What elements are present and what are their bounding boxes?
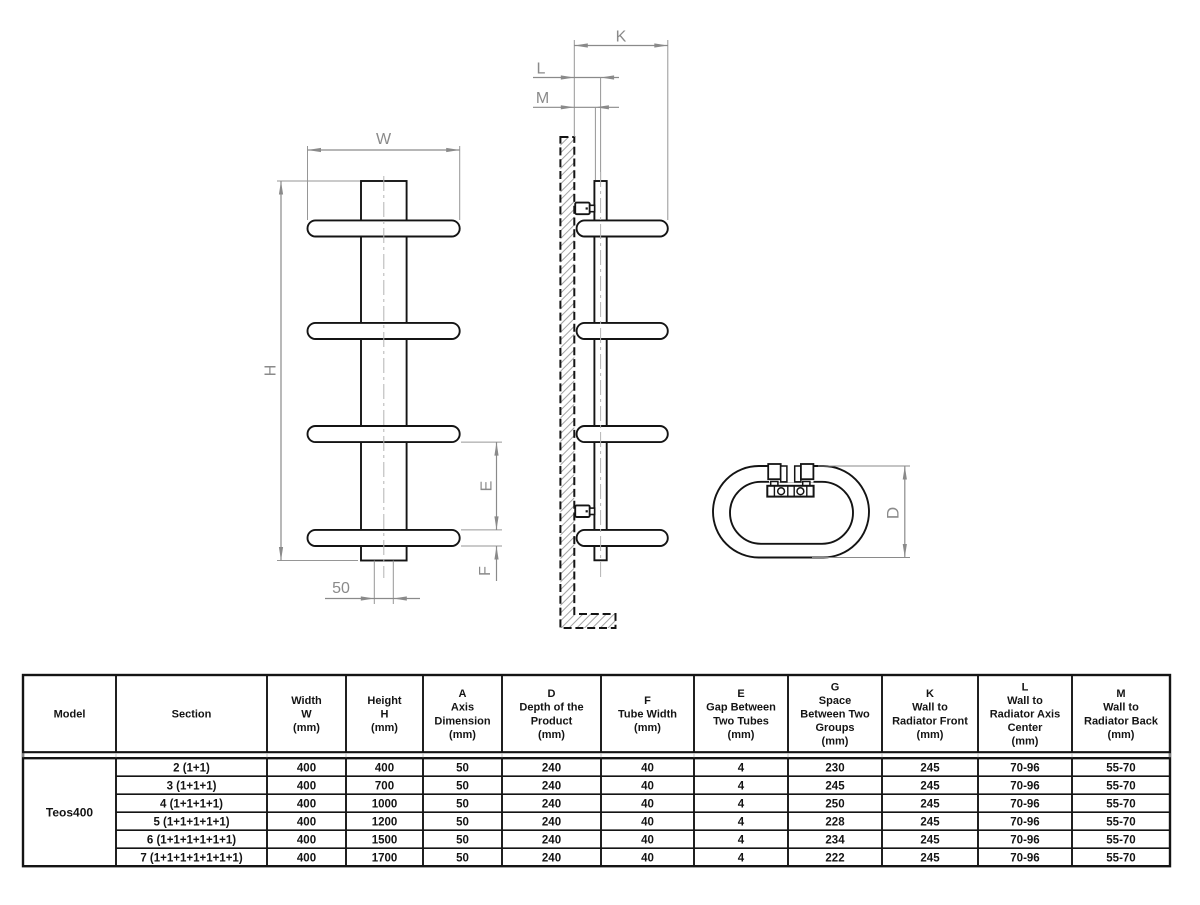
svg-text:(mm): (mm) — [822, 736, 849, 748]
svg-text:245: 245 — [920, 834, 940, 846]
svg-text:40: 40 — [641, 816, 654, 828]
svg-text:400: 400 — [297, 834, 316, 846]
svg-text:(mm): (mm) — [449, 729, 476, 741]
svg-text:Depth of the: Depth of the — [519, 702, 583, 714]
svg-text:1200: 1200 — [372, 816, 398, 828]
svg-text:(mm): (mm) — [371, 722, 398, 734]
svg-text:L: L — [537, 61, 546, 78]
svg-text:40: 40 — [641, 798, 654, 810]
svg-text:F: F — [644, 695, 651, 707]
svg-text:1500: 1500 — [372, 834, 398, 846]
svg-text:F: F — [477, 566, 494, 576]
svg-text:50: 50 — [332, 580, 350, 597]
svg-text:400: 400 — [297, 780, 316, 792]
svg-text:55-70: 55-70 — [1106, 780, 1135, 792]
svg-text:50: 50 — [456, 852, 469, 864]
svg-text:245: 245 — [920, 852, 940, 864]
svg-text:245: 245 — [920, 762, 940, 774]
svg-text:Radiator Front: Radiator Front — [892, 715, 968, 727]
svg-text:240: 240 — [542, 780, 561, 792]
svg-text:M: M — [1116, 688, 1125, 700]
svg-text:240: 240 — [542, 816, 561, 828]
svg-text:Axis: Axis — [451, 702, 474, 714]
svg-text:5 (1+1+1+1+1): 5 (1+1+1+1+1) — [153, 816, 229, 828]
svg-text:55-70: 55-70 — [1106, 816, 1135, 828]
svg-text:40: 40 — [641, 762, 654, 774]
svg-text:245: 245 — [920, 780, 940, 792]
svg-text:(mm): (mm) — [917, 729, 944, 741]
svg-text:Space: Space — [819, 695, 851, 707]
svg-text:H: H — [263, 365, 280, 377]
svg-text:70-96: 70-96 — [1010, 762, 1039, 774]
svg-text:D: D — [884, 507, 903, 519]
svg-text:245: 245 — [920, 816, 940, 828]
svg-text:M: M — [536, 90, 549, 107]
svg-text:250: 250 — [825, 798, 844, 810]
svg-text:55-70: 55-70 — [1106, 852, 1135, 864]
svg-text:400: 400 — [375, 762, 394, 774]
svg-text:40: 40 — [641, 780, 654, 792]
svg-text:4: 4 — [738, 834, 745, 846]
svg-text:234: 234 — [825, 834, 845, 846]
svg-text:4: 4 — [738, 816, 745, 828]
svg-text:50: 50 — [456, 816, 469, 828]
svg-text:400: 400 — [297, 852, 316, 864]
svg-text:245: 245 — [920, 798, 940, 810]
svg-text:(mm): (mm) — [1012, 736, 1039, 748]
svg-text:4: 4 — [738, 780, 745, 792]
svg-text:G: G — [831, 681, 840, 693]
svg-text:240: 240 — [542, 852, 561, 864]
svg-text:W: W — [376, 131, 392, 148]
svg-text:Product: Product — [531, 715, 573, 727]
svg-text:(mm): (mm) — [728, 729, 755, 741]
svg-text:D: D — [548, 688, 556, 700]
svg-text:240: 240 — [542, 798, 561, 810]
svg-text:6 (1+1+1+1+1+1): 6 (1+1+1+1+1+1) — [147, 834, 236, 846]
svg-text:E: E — [479, 481, 496, 492]
svg-text:A: A — [459, 688, 467, 700]
svg-text:1700: 1700 — [372, 852, 398, 864]
svg-text:400: 400 — [297, 762, 316, 774]
svg-text:70-96: 70-96 — [1010, 834, 1039, 846]
svg-text:400: 400 — [297, 816, 316, 828]
svg-text:222: 222 — [825, 852, 844, 864]
svg-text:Dimension: Dimension — [434, 715, 491, 727]
svg-text:240: 240 — [542, 762, 561, 774]
svg-text:Between Two: Between Two — [800, 709, 870, 721]
svg-text:70-96: 70-96 — [1010, 852, 1039, 864]
svg-text:Center: Center — [1008, 722, 1044, 734]
svg-text:70-96: 70-96 — [1010, 816, 1039, 828]
svg-text:(mm): (mm) — [538, 729, 565, 741]
svg-text:70-96: 70-96 — [1010, 780, 1039, 792]
svg-text:4: 4 — [738, 798, 745, 810]
svg-text:Wall to: Wall to — [1007, 695, 1043, 707]
svg-text:70-96: 70-96 — [1010, 798, 1039, 810]
svg-text:4: 4 — [738, 852, 745, 864]
svg-text:55-70: 55-70 — [1106, 798, 1135, 810]
svg-text:(mm): (mm) — [1108, 729, 1135, 741]
svg-text:Radiator Back: Radiator Back — [1084, 715, 1159, 727]
svg-text:Two Tubes: Two Tubes — [713, 715, 769, 727]
svg-text:50: 50 — [456, 762, 469, 774]
svg-text:3 (1+1+1): 3 (1+1+1) — [167, 780, 217, 792]
svg-text:Radiator Axis: Radiator Axis — [990, 709, 1061, 721]
svg-text:230: 230 — [825, 762, 844, 774]
svg-text:2 (1+1): 2 (1+1) — [173, 762, 210, 774]
svg-text:Section: Section — [172, 709, 212, 721]
svg-text:Teos400: Teos400 — [46, 805, 93, 819]
svg-text:40: 40 — [641, 852, 654, 864]
svg-text:H: H — [381, 709, 389, 721]
svg-text:K: K — [616, 29, 627, 46]
svg-text:700: 700 — [375, 780, 394, 792]
svg-text:4: 4 — [738, 762, 745, 774]
svg-text:50: 50 — [456, 798, 469, 810]
svg-text:Groups: Groups — [815, 722, 854, 734]
svg-text:400: 400 — [297, 798, 316, 810]
svg-text:Wall to: Wall to — [1103, 702, 1139, 714]
svg-text:50: 50 — [456, 780, 469, 792]
svg-text:7 (1+1+1+1+1+1+1): 7 (1+1+1+1+1+1+1) — [140, 852, 242, 864]
svg-text:(mm): (mm) — [634, 722, 661, 734]
svg-text:1000: 1000 — [372, 798, 398, 810]
svg-text:40: 40 — [641, 834, 654, 846]
svg-text:Tube Width: Tube Width — [618, 709, 677, 721]
svg-text:Gap Between: Gap Between — [706, 702, 776, 714]
svg-text:W: W — [301, 709, 312, 721]
svg-text:55-70: 55-70 — [1106, 834, 1135, 846]
svg-text:E: E — [737, 688, 744, 700]
svg-text:Height: Height — [367, 695, 402, 707]
svg-text:228: 228 — [825, 816, 845, 828]
svg-text:245: 245 — [825, 780, 845, 792]
svg-text:4 (1+1+1+1): 4 (1+1+1+1) — [160, 798, 223, 810]
svg-text:240: 240 — [542, 834, 561, 846]
svg-text:Model: Model — [54, 709, 86, 721]
svg-text:L: L — [1022, 681, 1029, 693]
svg-text:Width: Width — [291, 695, 322, 707]
svg-text:55-70: 55-70 — [1106, 762, 1135, 774]
svg-text:50: 50 — [456, 834, 469, 846]
svg-text:(mm): (mm) — [293, 722, 320, 734]
svg-text:Wall to: Wall to — [912, 702, 948, 714]
svg-text:K: K — [926, 688, 934, 700]
